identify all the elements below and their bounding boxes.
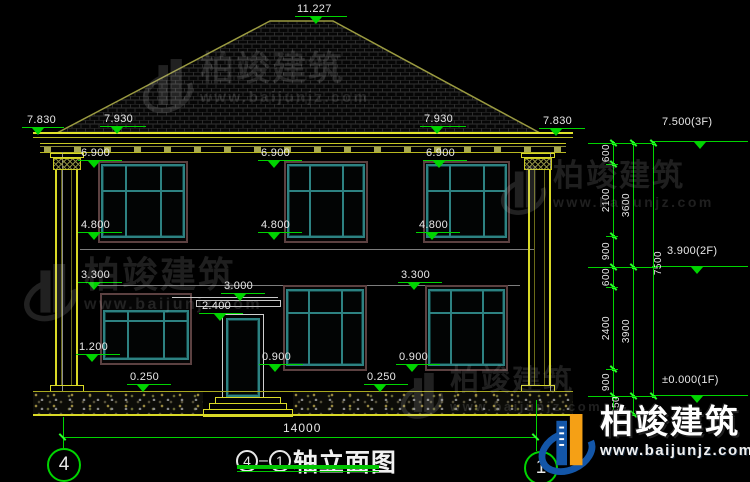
level-annotation-line	[423, 160, 467, 161]
level-annotation-triangle	[234, 294, 246, 301]
level-annotation-line	[259, 364, 303, 365]
brand-name: 柏竣建筑	[600, 405, 750, 438]
level-annotation-text: 6.900	[261, 147, 290, 159]
window-transom	[103, 190, 183, 192]
level-annotation-triangle	[268, 161, 280, 168]
level-annotation-triangle	[406, 365, 418, 372]
cornice-line-2	[40, 146, 566, 147]
window-frame	[428, 289, 505, 366]
level-annotation-text: 4.800	[419, 219, 448, 231]
level-annotation-line	[127, 384, 171, 385]
chain-connector-line	[588, 396, 656, 397]
level-annotation-line	[78, 282, 122, 283]
window-mullion	[125, 166, 127, 236]
pilaster-left-shaft-inner	[76, 170, 78, 385]
level-annotation-text: ±0.000(1F)	[662, 374, 719, 386]
ground-line	[33, 414, 573, 416]
level-annotation-triangle	[408, 283, 420, 290]
level-annotation-line	[396, 364, 440, 365]
cornice-line-1	[40, 143, 566, 144]
window-mullion	[482, 291, 484, 364]
window-mullion	[160, 166, 162, 236]
axis-bubble-4: 4	[47, 448, 81, 482]
plinth-band-right	[293, 392, 573, 414]
level-annotation-text: 6.900	[426, 147, 455, 159]
level-annotation-triangle	[431, 127, 443, 134]
overall-dimension-text: 14000	[283, 421, 321, 435]
pilaster-right-flute-a	[534, 170, 535, 385]
level-annotation-triangle	[269, 365, 281, 372]
chain-connector-line	[606, 369, 618, 370]
level-annotation-text: 0.900	[399, 351, 428, 363]
level-annotation-triangle	[32, 128, 44, 135]
title-text: 轴立面图	[293, 443, 397, 479]
level-annotation-triangle	[111, 127, 123, 134]
pilaster-left-flute-a	[61, 170, 62, 385]
chain-connector-line	[588, 143, 656, 144]
chain-dim-text: 900	[601, 242, 612, 260]
level-annotation-text: 3.000	[224, 280, 253, 292]
window-mullion	[308, 291, 310, 364]
overall-dimension-line	[63, 437, 536, 438]
level-annotation-triangle	[137, 385, 149, 392]
entry-door-leaf	[226, 318, 260, 397]
level-annotation-triangle	[268, 233, 280, 240]
level-annotation-text: 7.930	[104, 113, 133, 125]
brand-logo: 柏竣建筑 www.baijunjz.com	[538, 405, 750, 481]
level-annotation-line	[100, 126, 146, 127]
level-annotation-text: 7.500(3F)	[662, 116, 712, 128]
window-mullion	[483, 166, 485, 236]
level-annotation-triangle	[86, 355, 98, 362]
window-frame	[101, 164, 185, 238]
level-annotation-line	[364, 384, 408, 385]
window-transom	[289, 190, 363, 192]
window-mullion	[450, 291, 452, 364]
level-annotation-triangle	[426, 233, 438, 240]
level-annotation-text: 7.830	[543, 115, 572, 127]
window-transom	[430, 312, 503, 314]
level-annotation-triangle	[691, 267, 703, 274]
level-annotation-text: 0.250	[367, 371, 396, 383]
level-annotation-line	[398, 282, 442, 283]
level-annotation-line	[539, 128, 585, 129]
level-annotation-triangle	[310, 17, 322, 24]
window-transom	[105, 320, 187, 322]
brand-url: www.baijunjz.com	[600, 442, 750, 459]
level-annotation-line	[258, 160, 302, 161]
chain-dim-text: 3900	[621, 319, 632, 343]
level-annotation-text: 0.250	[130, 371, 159, 383]
cornice-dentil	[44, 147, 51, 152]
level-annotation-text: 2.400	[202, 300, 231, 312]
pilaster-right-shaft-inner	[528, 170, 530, 385]
chain-connector-line	[606, 236, 618, 237]
chain-connector-line	[606, 164, 618, 165]
level-annotation-triangle	[433, 161, 445, 168]
chain-dim-text: 2400	[601, 316, 612, 340]
level-annotation-triangle	[691, 396, 703, 403]
chain-connector-line	[606, 287, 618, 288]
plinth-band-left	[33, 392, 203, 414]
extension-line-axis-right	[536, 400, 537, 451]
level-annotation-text: 4.800	[81, 219, 110, 231]
cad-elevation-drawing: 11.2277.8307.9307.9307.8306.9006.9006.90…	[0, 0, 750, 482]
pilaster-left-shaft-outer	[55, 170, 57, 385]
level-annotation-line	[78, 232, 122, 233]
level-annotation-triangle	[88, 233, 100, 240]
level-annotation-text: 6.900	[81, 147, 110, 159]
level-annotation-line	[258, 232, 302, 233]
window-mullion	[127, 312, 129, 358]
window-mullion	[449, 166, 451, 236]
level-annotation-triangle	[88, 283, 100, 290]
chain-dim-text: 900	[601, 373, 612, 391]
extension-line-axis-left	[63, 417, 64, 448]
window-transom	[288, 312, 362, 314]
level-annotation-triangle	[374, 385, 386, 392]
porch-canopy-line	[172, 297, 278, 298]
pilaster-left-flute-b	[71, 170, 72, 385]
brand-logo-icon	[538, 405, 596, 481]
axis-bubble-4-label: 4	[59, 454, 70, 476]
level-annotation-line	[78, 160, 122, 161]
level-annotation-line	[416, 232, 460, 233]
window-mullion	[309, 166, 311, 236]
title-underline-thick	[237, 465, 379, 469]
chain-dim-text: 2100	[601, 188, 612, 212]
chain-dim-text: 3600	[621, 193, 632, 217]
level-annotation-text: 3.300	[81, 269, 110, 281]
chain-dim-text: 7500	[653, 251, 664, 275]
pilaster-left-capital-block	[53, 158, 81, 170]
eave-fascia-bottom	[33, 137, 573, 138]
window-mullion	[342, 166, 344, 236]
level-annotation-text: 3.300	[401, 269, 430, 281]
level-annotation-triangle	[88, 161, 100, 168]
pilaster-right-flute-b	[544, 170, 545, 385]
window-mullion	[341, 291, 343, 364]
drawing-title: 4 – 1 轴立面图	[236, 443, 397, 479]
title-underline-thin	[237, 471, 379, 472]
chain-line	[633, 141, 634, 414]
level-annotation-text: 3.900(2F)	[667, 245, 717, 257]
cornice-dentil	[554, 147, 561, 152]
level-annotation-triangle	[694, 142, 706, 149]
level-annotation-text: 11.227	[297, 3, 332, 15]
level-annotation-triangle	[214, 314, 226, 321]
chain-dim-text: 600	[601, 268, 612, 286]
level-annotation-triangle	[550, 129, 562, 136]
sill-band-2f	[80, 249, 535, 250]
level-annotation-text: 0.900	[262, 351, 291, 363]
chain-connector-line	[588, 267, 656, 268]
chain-line	[613, 141, 614, 414]
level-annotation-text: 1.200	[79, 341, 108, 353]
level-annotation-text: 4.800	[261, 219, 290, 231]
window-frame	[286, 289, 364, 366]
level-annotation-text: 7.830	[27, 114, 56, 126]
chain-dim-text: 600	[601, 144, 612, 162]
level-annotation-line	[76, 354, 120, 355]
window-mullion	[163, 312, 165, 358]
window-frame	[103, 310, 189, 360]
level-annotation-line	[420, 126, 466, 127]
window-transom	[428, 190, 505, 192]
window-frame	[287, 164, 365, 238]
pilaster-right-capital-block	[524, 158, 552, 170]
level-annotation-text: 7.930	[424, 113, 453, 125]
pilaster-right-shaft-outer	[549, 170, 551, 385]
